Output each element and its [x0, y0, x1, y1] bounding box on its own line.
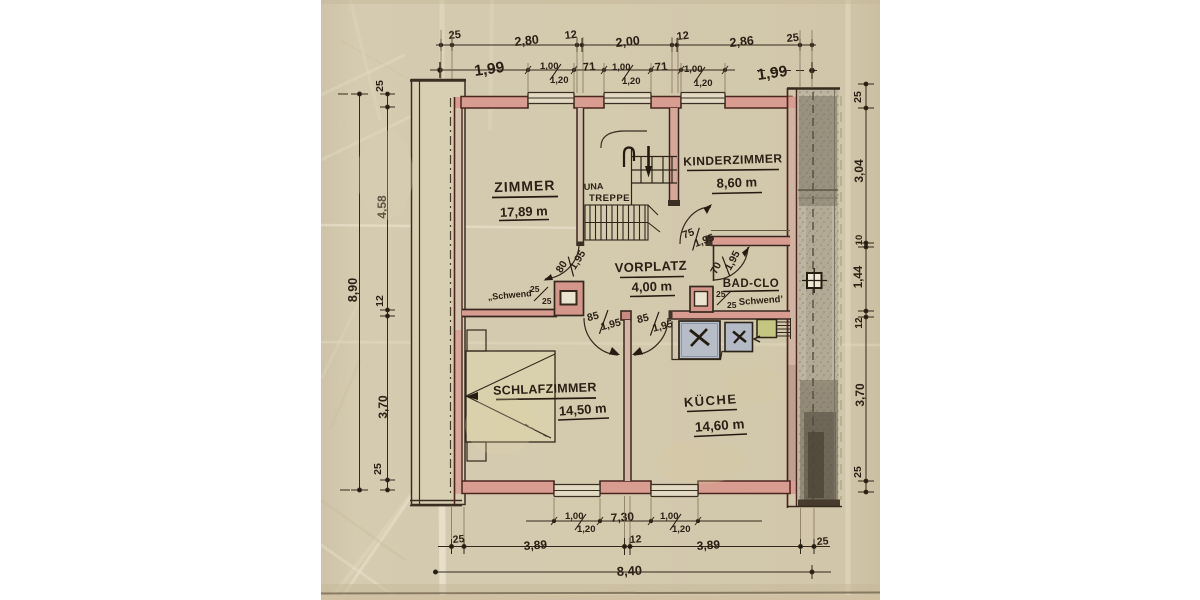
svg-text:1,00: 1,00	[612, 62, 631, 73]
svg-text:71: 71	[654, 61, 668, 74]
svg-text:25: 25	[542, 296, 552, 306]
svg-text:3,70: 3,70	[853, 383, 867, 407]
svg-text:25: 25	[727, 300, 737, 310]
svg-text:UNA: UNA	[584, 181, 604, 192]
svg-text:BAD-CLO: BAD-CLO	[723, 278, 780, 290]
svg-text:25: 25	[374, 80, 386, 92]
svg-text:25: 25	[816, 535, 829, 548]
svg-text:25: 25	[530, 284, 540, 294]
svg-text:7,30: 7,30	[610, 509, 635, 525]
svg-text:3,89: 3,89	[696, 537, 721, 553]
svg-text:3,70: 3,70	[376, 395, 390, 419]
svg-text:1,20: 1,20	[550, 75, 569, 86]
svg-text:1,20: 1,20	[694, 78, 713, 89]
svg-text:25: 25	[786, 32, 799, 45]
svg-text:2,80: 2,80	[514, 33, 540, 49]
svg-text:8,40: 8,40	[616, 563, 642, 579]
svg-text:1,20: 1,20	[577, 524, 596, 535]
svg-text:12: 12	[374, 295, 386, 307]
svg-text:10: 10	[854, 235, 865, 246]
svg-text:25: 25	[372, 463, 384, 475]
svg-text:25: 25	[852, 91, 864, 103]
svg-text:4,00 m: 4,00 m	[631, 278, 672, 294]
svg-text:TREPPE: TREPPE	[589, 193, 630, 204]
svg-text:1,00: 1,00	[540, 61, 559, 72]
svg-text:71: 71	[582, 61, 596, 74]
svg-text:17,89 m: 17,89 m	[500, 203, 548, 220]
svg-text:1,00: 1,00	[684, 64, 703, 75]
svg-text:8,60 m: 8,60 m	[716, 174, 757, 190]
svg-text:2,86: 2,86	[729, 34, 755, 50]
svg-text:12: 12	[564, 29, 577, 42]
svg-text:8,90: 8,90	[346, 278, 360, 302]
svg-text:25: 25	[448, 29, 461, 42]
svg-text:1,00: 1,00	[660, 511, 679, 522]
svg-text:2,00: 2,00	[615, 34, 641, 50]
svg-text:25: 25	[452, 533, 465, 546]
svg-text:1,20: 1,20	[622, 76, 641, 87]
svg-text:25: 25	[852, 466, 864, 478]
svg-text:1,20: 1,20	[672, 524, 691, 535]
svg-text:3,04: 3,04	[852, 159, 866, 183]
svg-text:12: 12	[854, 317, 865, 329]
svg-text:1,44: 1,44	[853, 265, 865, 288]
svg-text:1,00: 1,00	[565, 511, 584, 522]
svg-text:ZIMMER: ZIMMER	[494, 177, 556, 195]
svg-text:VORPLATZ: VORPLATZ	[614, 258, 687, 276]
svg-text:12: 12	[629, 533, 642, 546]
svg-text:3,89: 3,89	[523, 537, 548, 553]
